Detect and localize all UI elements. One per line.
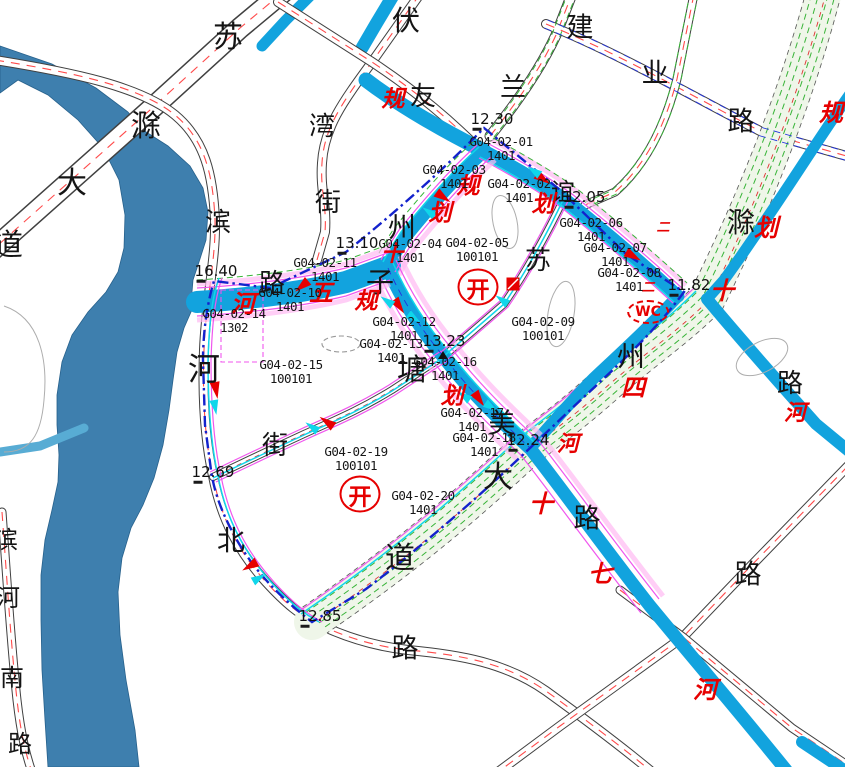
revision-cloud (488, 193, 523, 251)
dashed-blob (322, 336, 360, 352)
old-bank-line (4, 306, 45, 452)
canal-top (366, 80, 484, 151)
flow-marker-cyan (209, 399, 220, 415)
canal-elbow-se (707, 299, 845, 452)
planning-map: 开 开 WC 苏滁大道伏友兰湾街建业路州子路塘街北河滨苏谊滁州大道美路路路路滨河… (0, 0, 845, 767)
canal-east (531, 296, 678, 447)
revision-cloud (542, 279, 579, 349)
map-canvas (0, 0, 845, 767)
canal-center-nw (388, 151, 484, 266)
